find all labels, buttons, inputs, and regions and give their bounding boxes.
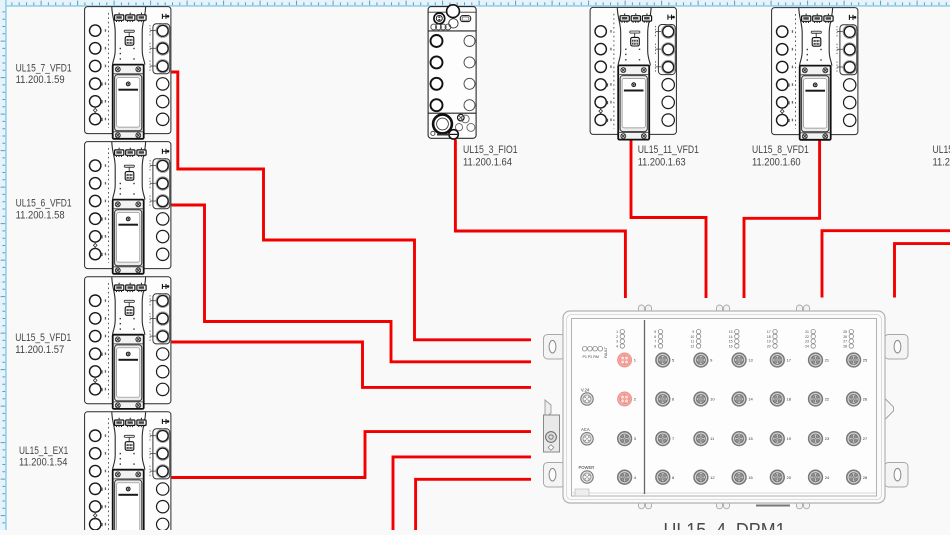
svg-text:21: 21 <box>805 330 809 334</box>
svg-text:22: 22 <box>805 335 809 339</box>
svg-text:26: 26 <box>863 397 868 402</box>
svg-text:20: 20 <box>767 344 771 348</box>
svg-text:18: 18 <box>767 335 771 339</box>
svg-text:2: 2 <box>616 335 618 339</box>
svg-text:16: 16 <box>729 344 733 348</box>
svg-text:UL15_7_VFD1: UL15_7_VFD1 <box>16 62 72 74</box>
svg-text:12: 12 <box>710 475 715 480</box>
svg-text:13: 13 <box>729 330 733 334</box>
svg-text:21: 21 <box>825 358 830 363</box>
svg-text:19: 19 <box>787 436 792 441</box>
svg-text:11: 11 <box>691 340 695 344</box>
svg-text:V.24: V.24 <box>581 388 590 393</box>
svg-text:13: 13 <box>748 358 753 363</box>
svg-text:11.200.1.57: 11.200.1.57 <box>15 344 64 356</box>
svg-text:14: 14 <box>748 397 753 402</box>
svg-text:P1 P2 RM: P1 P2 RM <box>583 355 599 359</box>
svg-text:UL15_5_VFD1: UL15_5_VFD1 <box>15 332 71 344</box>
svg-text:17: 17 <box>767 330 771 334</box>
svg-text:UL15_1_EX1: UL15_1_EX1 <box>19 445 68 457</box>
svg-text:16: 16 <box>748 475 753 480</box>
svg-text:27: 27 <box>843 340 847 344</box>
svg-text:10: 10 <box>691 335 695 339</box>
svg-text:11.200.1.60: 11.200.1.60 <box>752 157 801 169</box>
svg-text:17: 17 <box>787 358 792 363</box>
svg-text:11.200.1.54: 11.200.1.54 <box>19 457 67 469</box>
svg-text:26: 26 <box>843 335 847 339</box>
svg-text:22: 22 <box>825 397 830 402</box>
svg-text:28: 28 <box>843 344 847 348</box>
svg-text:19: 19 <box>767 340 771 344</box>
svg-text:UL15_9_VFD1: UL15_9_VFD1 <box>933 144 950 156</box>
svg-text:1: 1 <box>616 330 618 334</box>
svg-text:ACA: ACA <box>581 427 590 432</box>
svg-text:23: 23 <box>825 436 830 441</box>
svg-text:8: 8 <box>654 344 656 348</box>
svg-text:14: 14 <box>729 335 733 339</box>
svg-text:27: 27 <box>863 436 868 441</box>
svg-text:15: 15 <box>729 340 733 344</box>
svg-text:6: 6 <box>654 335 656 339</box>
svg-text:11.200.1.59: 11.200.1.59 <box>16 74 65 86</box>
svg-text:UL15_4_DPM1: UL15_4_DPM1 <box>664 521 786 531</box>
svg-text:7: 7 <box>654 340 656 344</box>
svg-text:25: 25 <box>843 330 847 334</box>
svg-text:24: 24 <box>805 344 809 348</box>
svg-text:4: 4 <box>616 344 618 348</box>
svg-text:25: 25 <box>863 358 868 363</box>
svg-text:UL15_11_VFD1: UL15_11_VFD1 <box>638 144 699 156</box>
svg-text:20: 20 <box>787 475 792 480</box>
svg-text:15: 15 <box>748 436 753 441</box>
svg-text:12: 12 <box>691 344 695 348</box>
svg-text:23: 23 <box>805 340 809 344</box>
svg-text:11.200.1.63: 11.200.1.63 <box>638 157 686 169</box>
svg-text:10: 10 <box>710 397 715 402</box>
svg-text:UL15_3_FIO1: UL15_3_FIO1 <box>463 144 518 156</box>
svg-text:11.200.1.61: 11.200.1.61 <box>933 157 950 169</box>
svg-text:UL15_8_VFD1: UL15_8_VFD1 <box>752 144 809 156</box>
svg-text:3: 3 <box>616 340 618 344</box>
svg-text:UL15_6_VFD1: UL15_6_VFD1 <box>16 198 72 210</box>
svg-text:18: 18 <box>787 397 792 402</box>
svg-text:24: 24 <box>825 475 830 480</box>
svg-text:28: 28 <box>863 475 868 480</box>
svg-text:FAULT: FAULT <box>604 346 608 358</box>
svg-text:9: 9 <box>692 330 694 334</box>
svg-text:11.200.1.58: 11.200.1.58 <box>16 210 65 222</box>
svg-text:11.200.1.64: 11.200.1.64 <box>463 157 512 169</box>
svg-text:POWER: POWER <box>579 465 595 470</box>
svg-text:5: 5 <box>654 330 656 334</box>
